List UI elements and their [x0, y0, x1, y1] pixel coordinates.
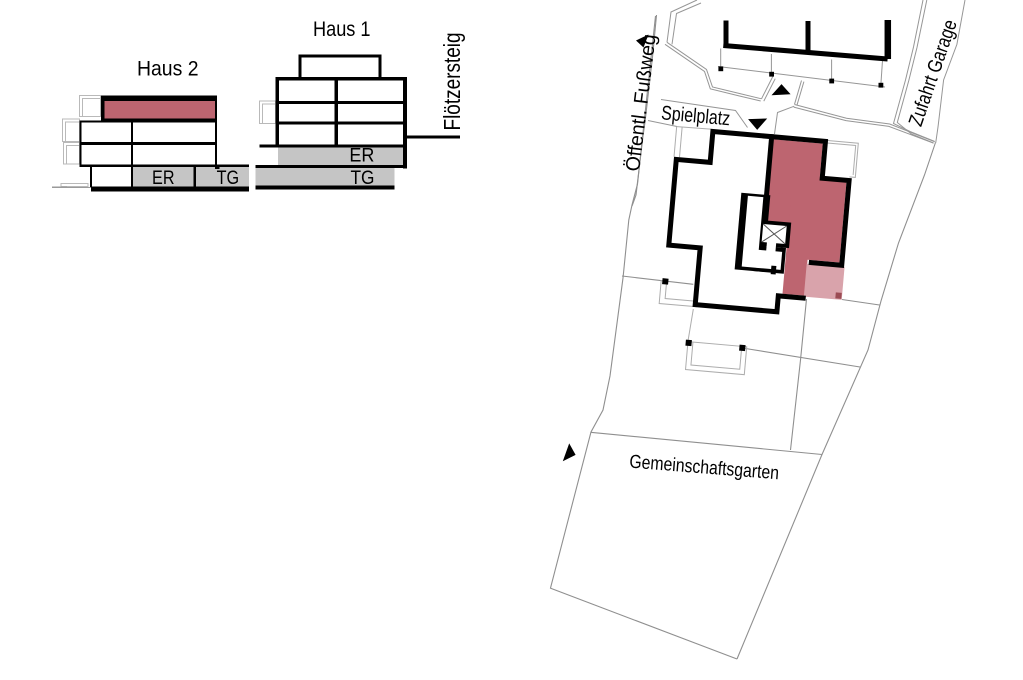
svg-text:Haus 1: Haus 1: [313, 18, 371, 41]
svg-text:TG: TG: [351, 168, 375, 189]
svg-text:ER: ER: [152, 168, 175, 189]
svg-text:ER: ER: [349, 146, 374, 167]
svg-text:Haus 2: Haus 2: [137, 57, 199, 80]
svg-text:Flötzersteig: Flötzersteig: [439, 33, 465, 131]
svg-text:TG: TG: [217, 168, 240, 189]
